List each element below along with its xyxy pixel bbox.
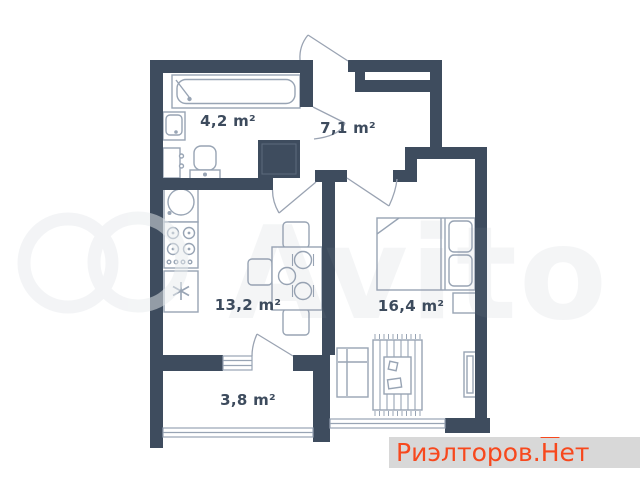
bed bbox=[377, 218, 475, 290]
wall-bedroom-bottom-corner bbox=[445, 418, 490, 433]
wall-top-right bbox=[348, 60, 442, 72]
wall-bedroom-top bbox=[405, 147, 487, 159]
wall-bath-bottom bbox=[150, 178, 273, 190]
agency-watermark-banner: Риэлторов.Нет bbox=[389, 437, 640, 468]
wall-kitchen-top bbox=[315, 170, 347, 182]
niche-bottom bbox=[355, 80, 430, 92]
toilet bbox=[190, 146, 220, 179]
kitchen-sink-unit bbox=[164, 186, 198, 222]
wall-kitchen-bottom-left bbox=[163, 355, 223, 371]
kitchen-door bbox=[273, 182, 317, 213]
floorplan-drawing bbox=[0, 0, 640, 478]
rug bbox=[373, 334, 422, 416]
room-label-bedroom: 16,4 m² bbox=[378, 297, 445, 315]
bathtub bbox=[172, 75, 300, 108]
bedroom-door bbox=[347, 178, 397, 206]
dining-chair-left bbox=[248, 259, 272, 285]
nightstand bbox=[453, 293, 477, 313]
dining-chair-bottom bbox=[283, 309, 309, 335]
room-label-balcony: 3,8 m² bbox=[220, 391, 276, 409]
stove bbox=[164, 222, 198, 268]
floor-plan-image: Avito 4,2 m² 7,1 m² 13,2 m² 16,4 m² 3,8 … bbox=[0, 0, 640, 478]
balcony-door bbox=[252, 334, 293, 356]
wall-bath-hallway bbox=[300, 60, 313, 107]
bedroom-window bbox=[330, 419, 445, 428]
brand-roof-letter: Н bbox=[541, 437, 560, 468]
towel-rail bbox=[163, 148, 184, 178]
wall-hallway-right bbox=[430, 60, 442, 147]
wall-bedroom-right bbox=[475, 147, 487, 433]
wall-kitchen-bedroom bbox=[322, 182, 335, 355]
radiator bbox=[464, 352, 476, 397]
fridge bbox=[164, 271, 198, 312]
kitchen-balcony-window bbox=[223, 356, 252, 370]
room-label-kitchen: 13,2 m² bbox=[215, 296, 282, 314]
bathroom-sink bbox=[163, 112, 185, 140]
wall-balcony-right bbox=[313, 355, 330, 442]
room-label-hallway: 7,1 m² bbox=[320, 119, 376, 137]
tv-stand bbox=[337, 348, 368, 397]
brand-prefix: Риэлторов. bbox=[396, 438, 541, 467]
entrance-door bbox=[300, 35, 348, 61]
dining-chair-top bbox=[283, 222, 309, 248]
wall-left-outer bbox=[150, 60, 163, 448]
balcony-glazing bbox=[163, 428, 313, 437]
brand-suffix: ет bbox=[560, 438, 590, 467]
room-label-bathroom: 4,2 m² bbox=[200, 112, 256, 130]
ventilation-shaft bbox=[258, 140, 300, 178]
wall-top-left bbox=[150, 60, 300, 73]
